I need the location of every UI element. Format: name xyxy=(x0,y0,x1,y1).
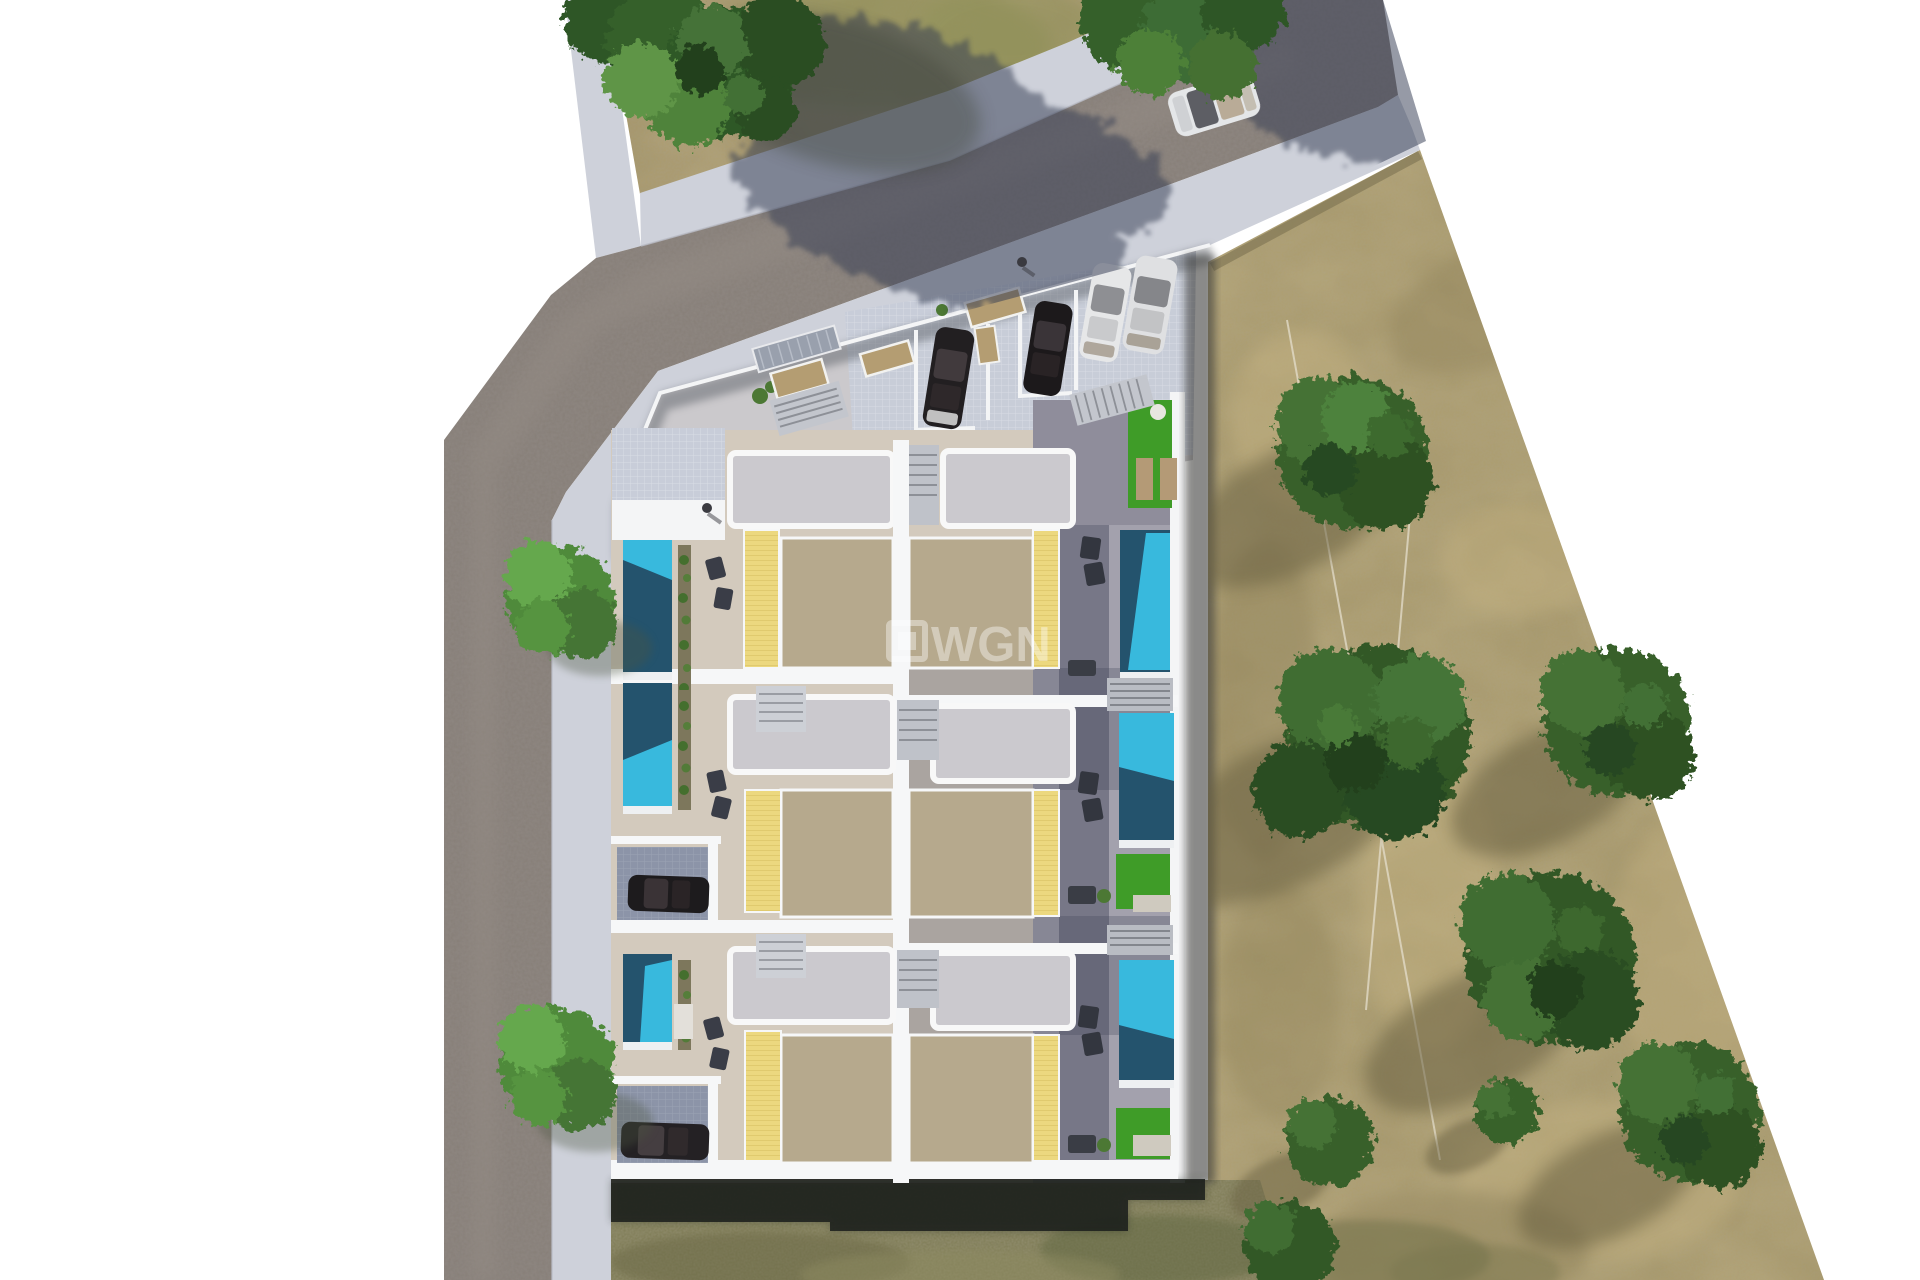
svg-text:WGN: WGN xyxy=(931,618,1051,672)
